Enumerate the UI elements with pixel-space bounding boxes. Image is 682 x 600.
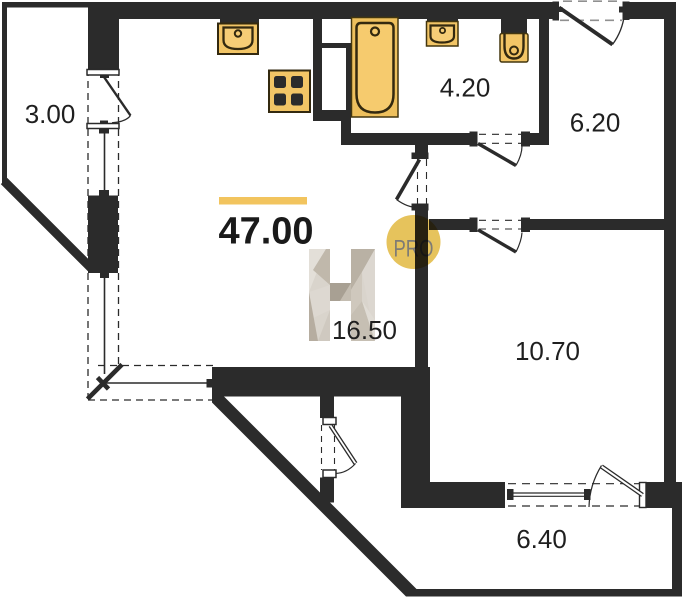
svg-text:4.20: 4.20 bbox=[440, 73, 491, 103]
svg-text:6.20: 6.20 bbox=[570, 108, 621, 138]
svg-text:16.50: 16.50 bbox=[332, 315, 397, 345]
svg-text:6.40: 6.40 bbox=[516, 524, 567, 554]
svg-text:PRO: PRO bbox=[394, 236, 434, 263]
svg-text:10.70: 10.70 bbox=[515, 336, 580, 366]
svg-text:47.00: 47.00 bbox=[218, 211, 313, 253]
svg-text:3.00: 3.00 bbox=[25, 99, 76, 129]
